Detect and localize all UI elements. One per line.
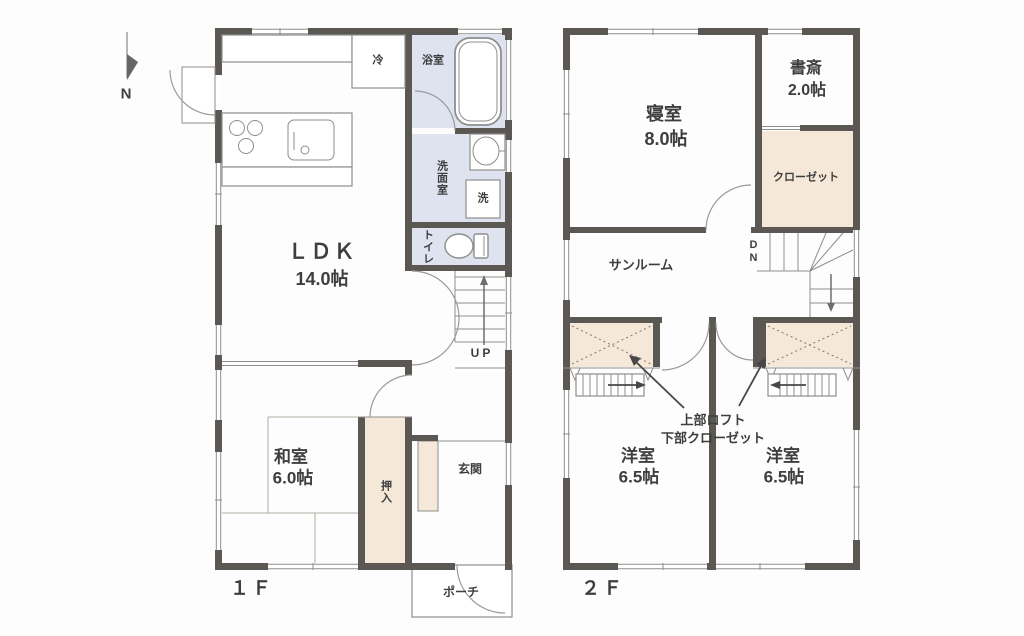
bedroom-size: 8.0帖	[644, 130, 687, 148]
toilet-label: トイレ	[422, 229, 433, 265]
stairs-up	[455, 271, 505, 345]
stairs-down	[757, 233, 853, 317]
western-room-right-label: 洋室	[766, 448, 800, 465]
stairs-down-label: DN	[748, 239, 759, 265]
ldk-label: ＬＤＫ	[288, 242, 357, 263]
compass-label: N	[121, 87, 132, 102]
floor1-label: １Ｆ	[230, 580, 274, 599]
tatami-grid	[222, 417, 358, 563]
western-room-left-size: 6.5帖	[619, 469, 660, 486]
genkan-label: 玄関	[458, 463, 482, 475]
sunroom-label: サンルーム	[609, 259, 674, 272]
loft-note-line2: 下部クローゼット	[661, 432, 765, 445]
western-room-right-size: 6.5帖	[764, 469, 805, 486]
vanity-sink	[470, 134, 505, 170]
loft-ladder-right	[766, 368, 853, 396]
floor2-walls	[563, 28, 860, 570]
study-size: 2.0帖	[788, 83, 826, 99]
washitsu-label: 和室	[274, 449, 308, 466]
floor1-plan	[170, 28, 512, 617]
western-room-left-label: 洋室	[621, 448, 655, 465]
closet-label: クローゼット	[773, 173, 839, 184]
loft-closet-left	[570, 323, 653, 367]
kitchen-counter	[222, 35, 352, 186]
floor2-plan	[563, 28, 860, 570]
bedroom-label: 寝室	[646, 105, 682, 123]
study-label: 書斎	[790, 61, 822, 77]
floorplan-image: N 冷 浴室 洗面室 洗 トイレ UP ＬＤＫ 14.0帖 和室 6.0帖 押入…	[0, 0, 1024, 636]
loft-ladder-left	[570, 368, 653, 396]
north-arrow-icon	[127, 32, 138, 80]
loft-note-line1: 上部ロフト	[680, 414, 745, 427]
washroom-label: 洗面室	[436, 160, 447, 196]
porch-label: ポーチ	[443, 586, 479, 598]
bath-label: 浴室	[422, 56, 444, 67]
loft-closet-right	[766, 323, 853, 367]
oshiire-label: 押入	[380, 480, 391, 504]
floor2-doors	[662, 185, 753, 370]
washitsu-size: 6.0帖	[273, 470, 314, 487]
toilet-fixture	[445, 234, 488, 258]
ldk-size: 14.0帖	[295, 270, 348, 288]
stairs-up-label: UP	[471, 347, 494, 359]
fridge-label: 冷	[373, 56, 384, 67]
bathtub	[455, 38, 501, 125]
shoe-cabinet	[418, 441, 438, 511]
floor2-label: ２Ｆ	[581, 580, 625, 599]
washer-label: 洗	[478, 194, 489, 205]
floorplan-drawing	[0, 0, 1024, 636]
